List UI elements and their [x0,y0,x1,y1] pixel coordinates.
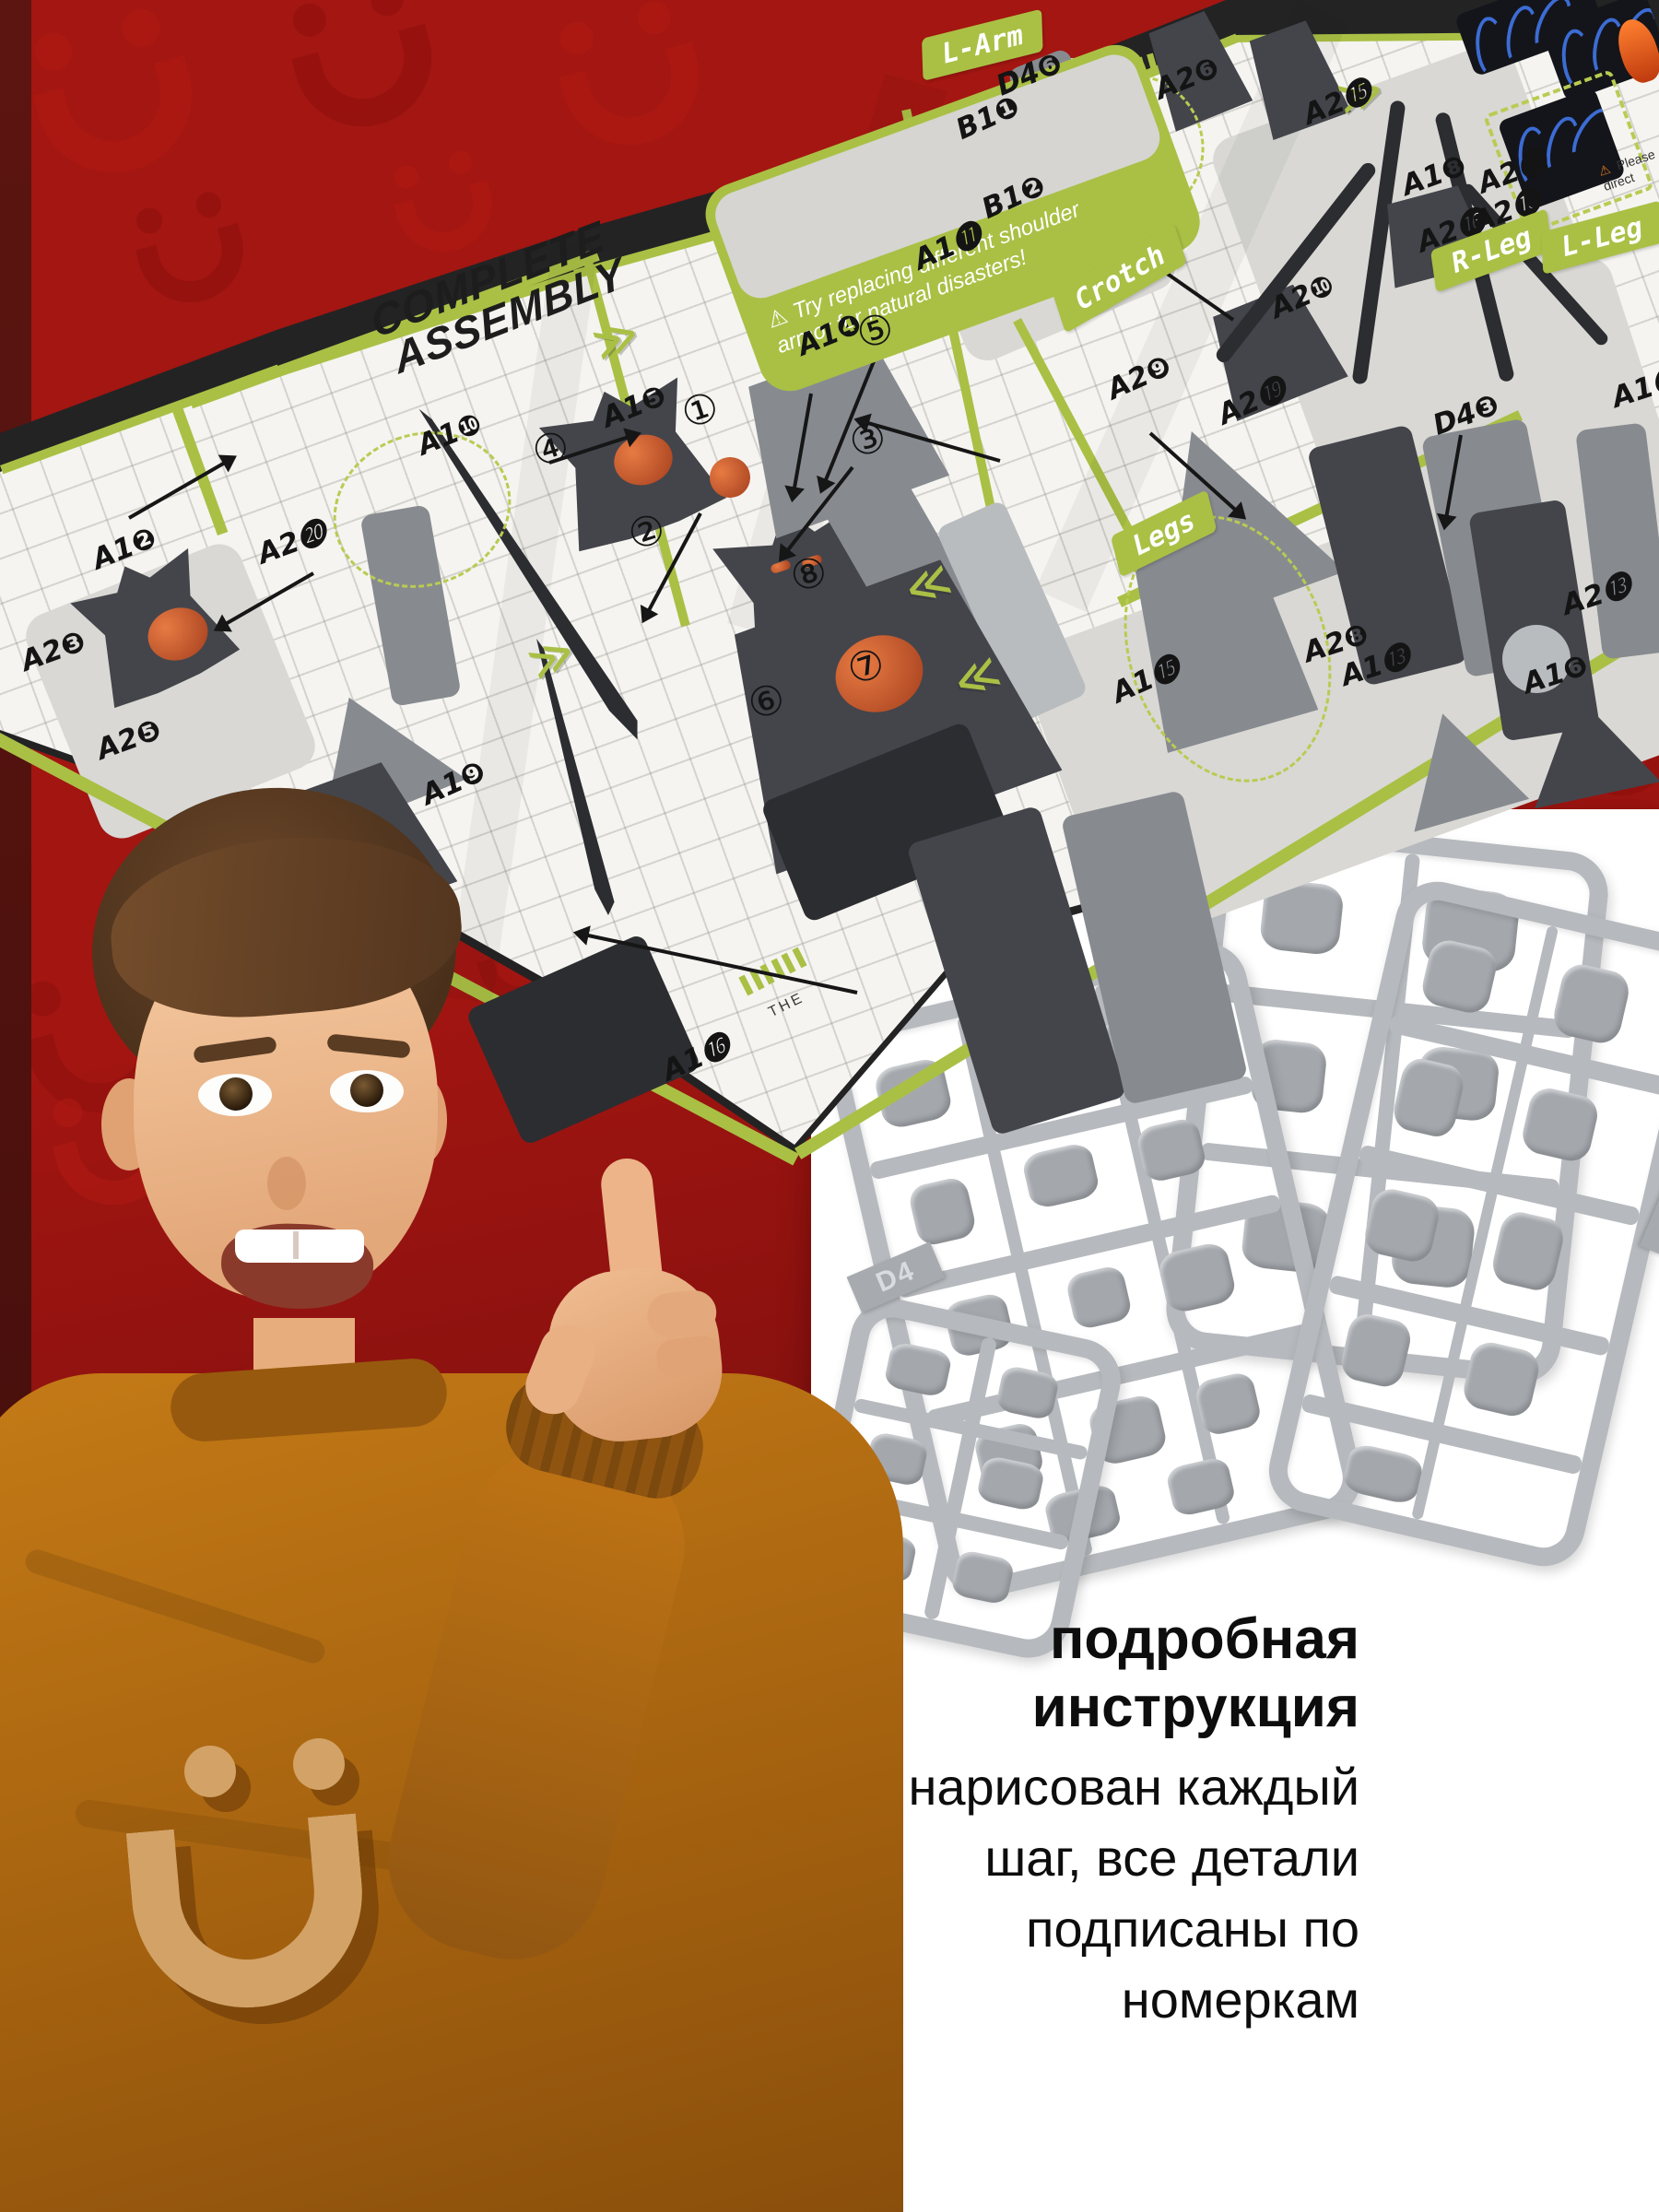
section-tab-r-leg: R-Leg [1430,208,1553,292]
boy-iris-left [219,1077,253,1111]
section-tab-l-arm: L-Arm [922,9,1043,81]
stage: A2D4 ≫≫≫≫≫ COMPLETE ASSEMBLY ⚠Try replac… [0,0,1659,2212]
section-tab-legs: Legs [1111,489,1218,578]
shirt-logo-u-dot-right [293,1738,345,1790]
boy-nose [267,1157,306,1210]
shirt-logo-u-dot-left [184,1746,236,1797]
boy-teeth [235,1230,364,1263]
section-tab-crotch: Crotch [1053,223,1187,334]
boy-photo [0,765,903,2212]
section-tab-l-leg: L-Leg [1541,200,1659,275]
boy-iris-right [350,1074,383,1107]
boy-hand-pointing [512,1146,782,1473]
boy-tooth-gap [293,1231,299,1259]
